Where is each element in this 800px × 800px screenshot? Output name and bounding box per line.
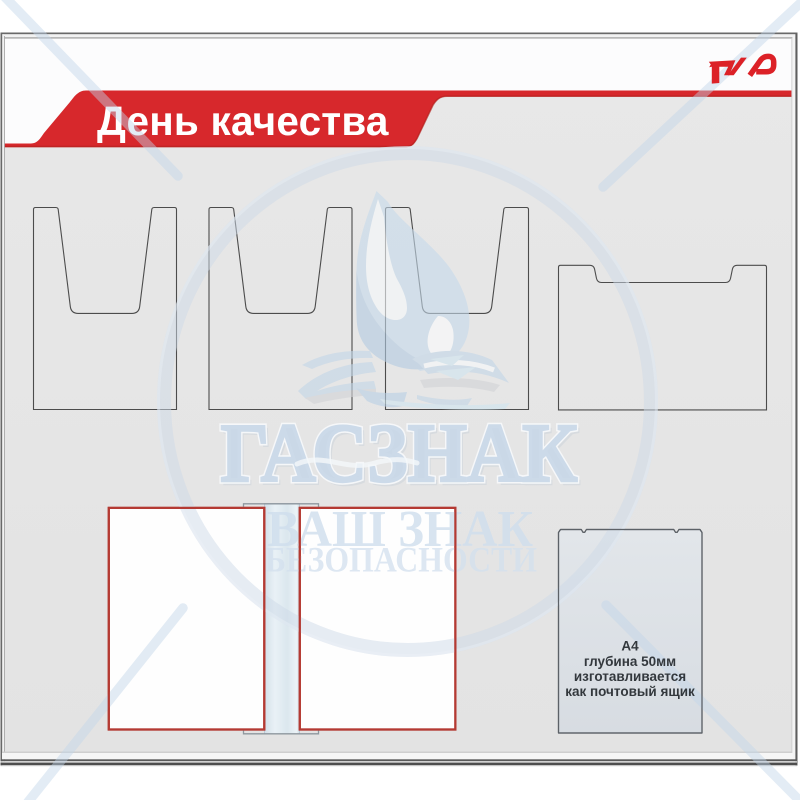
svg-text:глубина 50мм: глубина 50мм [584, 654, 676, 669]
svg-text:А4: А4 [621, 639, 639, 654]
svg-text:ГАСЗНАК: ГАСЗНАК [221, 407, 578, 500]
svg-text:изготавливается: изготавливается [574, 669, 686, 684]
svg-text:как почтовый ящик: как почтовый ящик [565, 684, 695, 699]
svg-text:БЕЗОПАСНОСТИ: БЕЗОПАСНОСТИ [265, 540, 537, 580]
